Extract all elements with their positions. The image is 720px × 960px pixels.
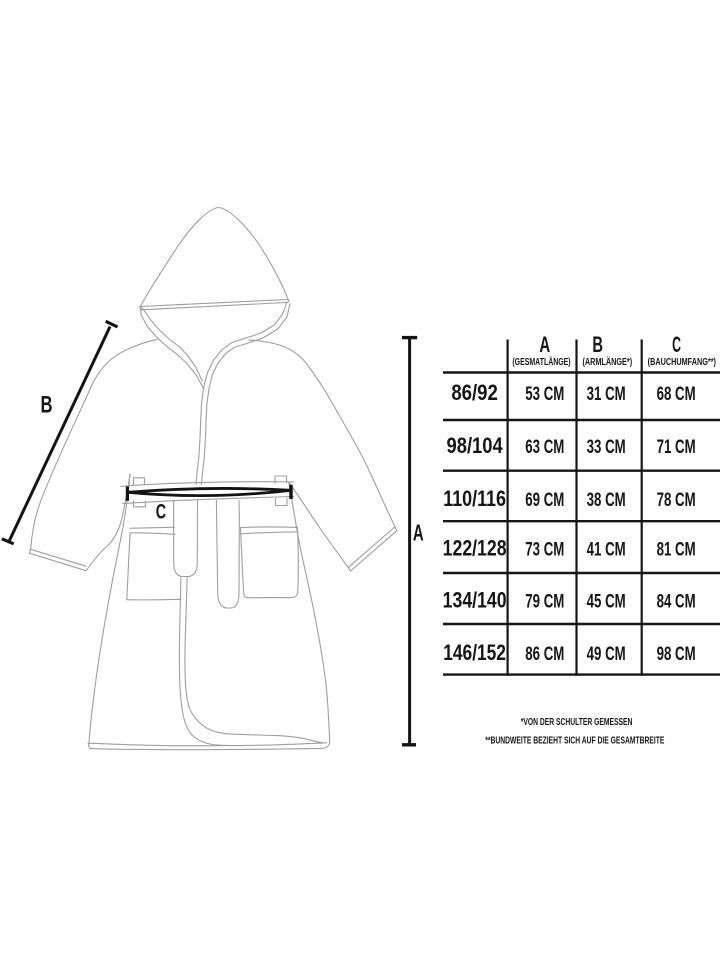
svg-text:98/104: 98/104 xyxy=(447,433,504,458)
svg-text:45 CM: 45 CM xyxy=(587,590,626,612)
svg-text:41 CM: 41 CM xyxy=(587,538,626,560)
svg-text:53 CM: 53 CM xyxy=(525,383,564,405)
svg-text:(GESMATLÄNGE): (GESMATLÄNGE) xyxy=(512,355,570,367)
svg-text:A: A xyxy=(539,333,550,358)
svg-text:33 CM: 33 CM xyxy=(587,435,626,457)
svg-text:71 CM: 71 CM xyxy=(657,435,696,457)
svg-text:134/140: 134/140 xyxy=(443,589,507,613)
svg-text:C: C xyxy=(156,498,166,523)
svg-text:110/116: 110/116 xyxy=(443,487,506,511)
svg-text:A: A xyxy=(413,520,424,546)
svg-text:B: B xyxy=(40,392,52,419)
svg-text:B: B xyxy=(592,333,603,358)
svg-text:98 CM: 98 CM xyxy=(657,642,696,664)
svg-text:79 CM: 79 CM xyxy=(525,590,564,612)
svg-text:38 CM: 38 CM xyxy=(587,488,626,510)
svg-text:31 CM: 31 CM xyxy=(587,383,626,405)
svg-text:122/128: 122/128 xyxy=(443,537,507,561)
svg-text:68 CM: 68 CM xyxy=(657,383,696,405)
svg-text:86 CM: 86 CM xyxy=(525,642,564,664)
svg-text:*VON DER SCHULTER GEMESSEN: *VON DER SCHULTER GEMESSEN xyxy=(521,716,633,728)
svg-text:73 CM: 73 CM xyxy=(525,538,564,560)
svg-text:(BAUCHUMFANG**): (BAUCHUMFANG**) xyxy=(648,356,716,368)
svg-text:81 CM: 81 CM xyxy=(657,538,696,560)
svg-text:63 CM: 63 CM xyxy=(525,435,564,457)
svg-text:78 CM: 78 CM xyxy=(657,488,696,510)
svg-text:86/92: 86/92 xyxy=(451,381,498,406)
svg-text:146/152: 146/152 xyxy=(443,641,506,666)
svg-text:C: C xyxy=(672,332,681,357)
svg-text:84 CM: 84 CM xyxy=(657,590,696,612)
svg-text:**BUNDWEITE BEZIEHT SICH AUF D: **BUNDWEITE BEZIEHT SICH AUF DIE GESAMTB… xyxy=(485,734,664,746)
svg-text:49 CM: 49 CM xyxy=(587,642,626,664)
svg-text:69 CM: 69 CM xyxy=(525,488,564,510)
svg-text:(ARMLÄNGE*): (ARMLÄNGE*) xyxy=(582,356,632,368)
